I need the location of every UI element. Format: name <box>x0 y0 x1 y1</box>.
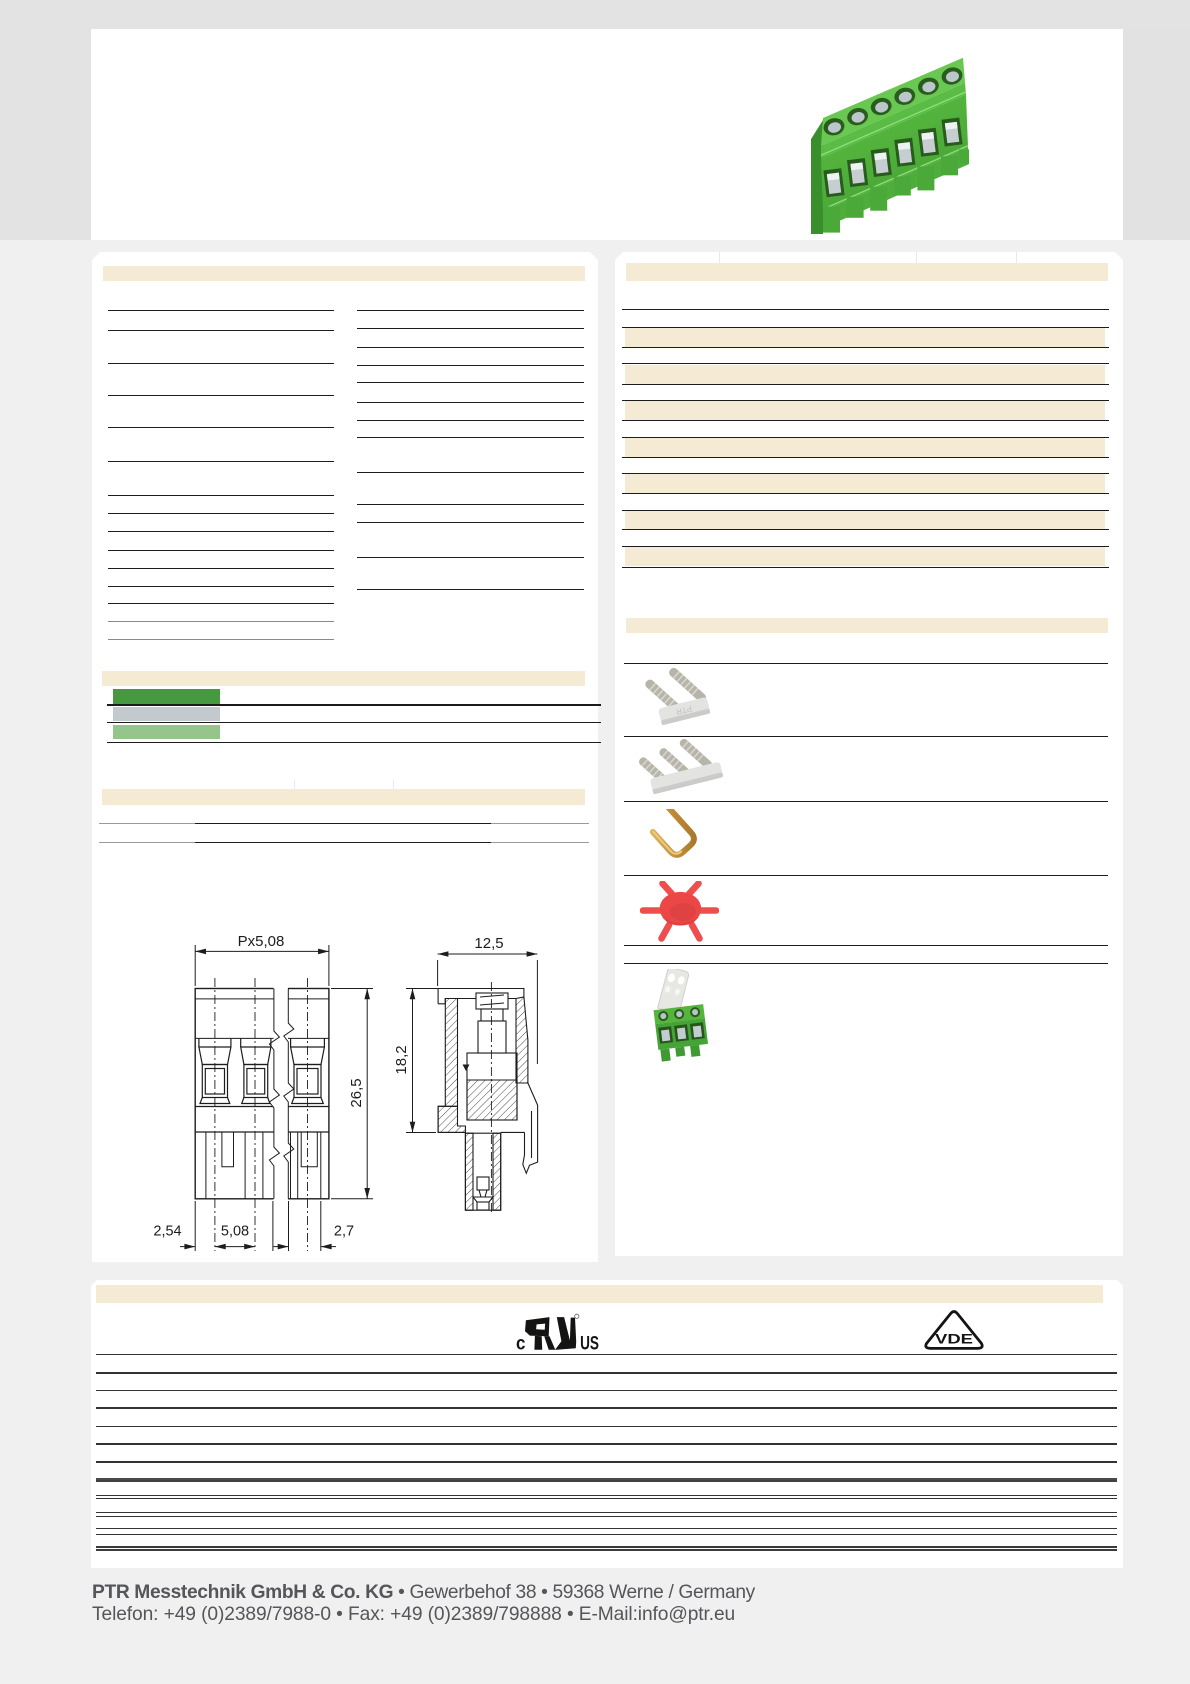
svg-text:c: c <box>516 1334 526 1352</box>
svg-text:VDE: VDE <box>935 1331 973 1346</box>
svg-text:US: US <box>580 1334 599 1352</box>
svg-text:2,54: 2,54 <box>153 1224 181 1240</box>
svg-text:26,5: 26,5 <box>348 1078 365 1107</box>
svg-text:5,08: 5,08 <box>221 1224 249 1240</box>
svg-text:18,2: 18,2 <box>393 1045 410 1074</box>
svg-text:12,5: 12,5 <box>474 935 503 952</box>
svg-text:Px5,08: Px5,08 <box>238 933 285 950</box>
svg-text:2,7: 2,7 <box>334 1224 354 1240</box>
